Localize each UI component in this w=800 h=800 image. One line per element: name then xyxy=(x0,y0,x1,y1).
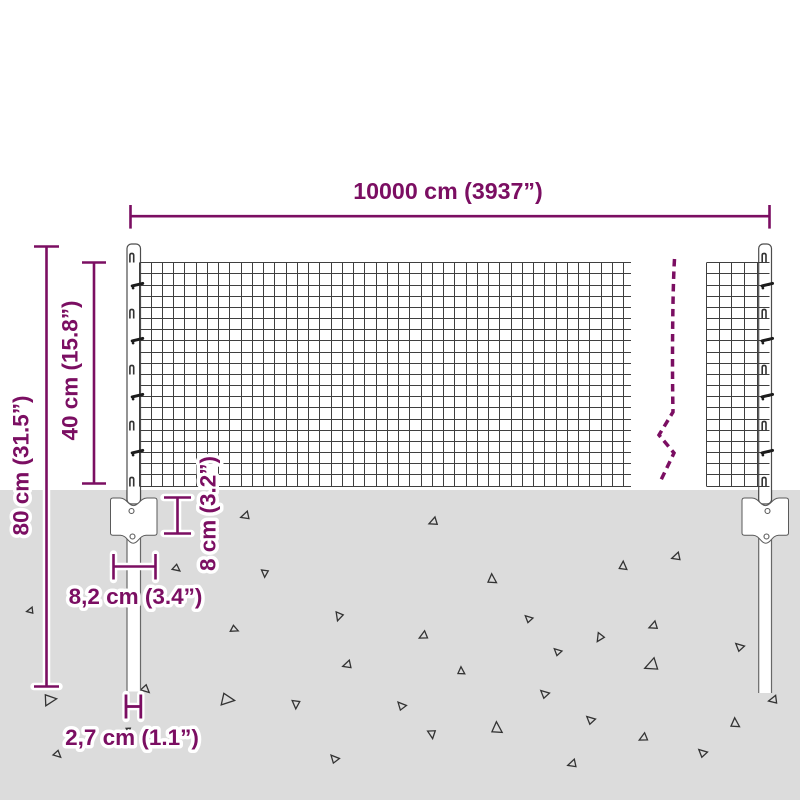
svg-text:8 cm (3.2”): 8 cm (3.2”) xyxy=(196,456,221,571)
svg-text:2,7 cm (1.1”): 2,7 cm (1.1”) xyxy=(65,725,199,750)
svg-text:8,2 cm (3.4”): 8,2 cm (3.4”) xyxy=(69,584,203,609)
svg-text:80 cm (31.5”): 80 cm (31.5”) xyxy=(9,395,34,535)
svg-text:10000 cm (3937”): 10000 cm (3937”) xyxy=(353,178,543,204)
svg-text:40 cm (15.8”): 40 cm (15.8”) xyxy=(58,300,83,440)
